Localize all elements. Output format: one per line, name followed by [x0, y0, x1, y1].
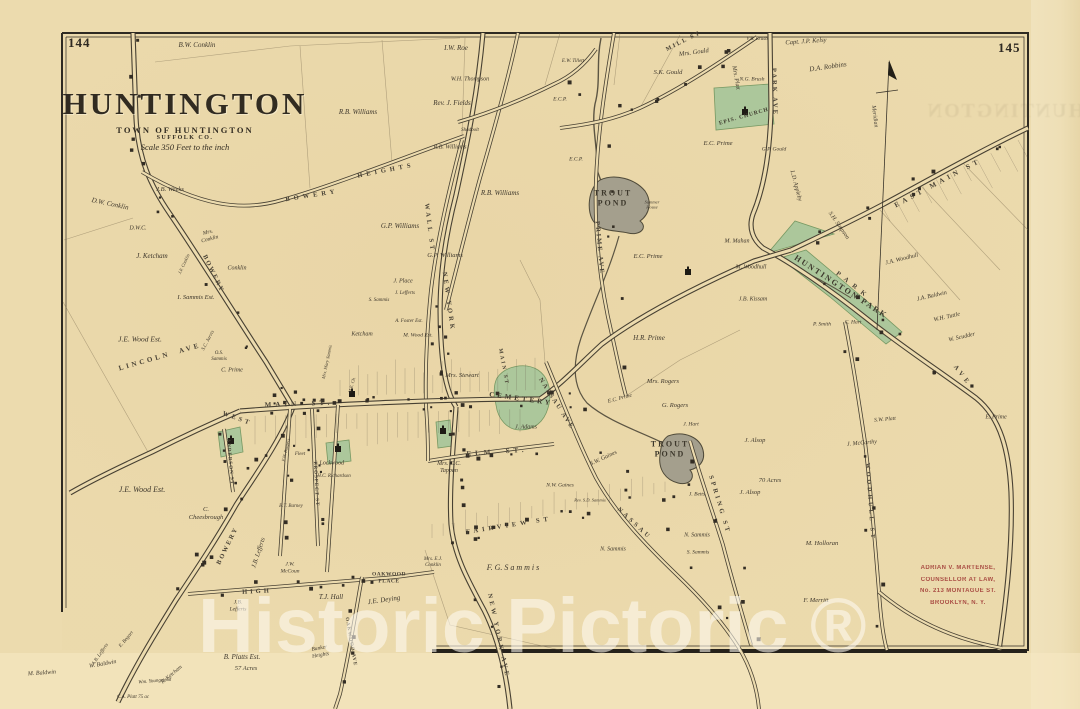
map-label: E.C.P.	[569, 157, 583, 164]
map-label: J. Adams	[515, 424, 537, 431]
map-label: H.R. Prime	[633, 334, 665, 342]
map-label: J. Lefferts	[395, 291, 415, 297]
map-label: J.E. Wood Est.	[118, 335, 162, 344]
map-label: M. Wood Est.	[403, 333, 432, 340]
map-label: S. Sammis	[369, 298, 390, 304]
map-label: R.B. Williams	[434, 144, 467, 151]
map-label: B.W. Conklin	[179, 41, 216, 49]
map-label: J. Betts	[689, 492, 705, 499]
map-label: B. Platts Est.	[224, 653, 261, 661]
map-label: J. Alsop	[745, 437, 766, 445]
stamp-line: COUNSELLOR AT LAW,	[893, 575, 1023, 587]
map-label: M. Mahan	[725, 238, 750, 245]
map-label: C. Prime	[221, 367, 243, 374]
map-label: C. Cheesbrough	[189, 506, 223, 522]
stamp-line: ADRIAN V. MARTENSE,	[893, 563, 1023, 575]
map-label: N.W. Gaines	[546, 483, 573, 490]
map-label: G.P. Gould	[762, 147, 787, 154]
map-label: J.B. Kissam	[739, 296, 768, 303]
map-label: Ketcham	[351, 331, 372, 338]
map-label: G.P. Williams	[381, 222, 419, 230]
map-label: TROUT POND	[594, 188, 632, 207]
stamp-line: No. 213 MONTAGUE ST.	[893, 586, 1023, 598]
compass-needle-icon	[888, 60, 897, 80]
map-label: M. Holloran	[806, 540, 839, 548]
map-label: C. Hart	[845, 320, 862, 327]
map-label: I. Sammis Est.	[177, 294, 214, 302]
page-number-left: 144	[68, 35, 91, 51]
ghost-title-bleedthrough: HUNTINGTON	[905, 100, 1080, 123]
map-label: C.A. Platt 75 ac	[117, 695, 149, 701]
map-label: Mrs. E.J. Conklin	[424, 557, 442, 569]
map-county: SUFFOLK CO.	[60, 135, 310, 141]
map-label: Shadbolt	[461, 128, 479, 134]
page-number-right: 145	[998, 40, 1021, 56]
map-label: E.C. Prime	[633, 253, 662, 261]
map-subtitle: TOWN OF HUNTINGTON	[60, 125, 310, 135]
map-label: E. Prime	[985, 414, 1006, 421]
map-label: Conklin	[228, 265, 247, 272]
map-label: I.W. Roe	[444, 44, 468, 52]
map-label: 57 Acres	[235, 665, 258, 673]
map-label: E.W. Tillett	[562, 59, 584, 65]
map-label: T.J. Hall	[319, 593, 343, 601]
map-label: Rev. J. Fields	[433, 99, 471, 107]
map-label: J. Hart	[683, 422, 699, 429]
map-label: D.W.C.	[129, 225, 146, 232]
map-title-block: HUNTINGTON TOWN OF HUNTINGTON SUFFOLK CO…	[60, 86, 310, 152]
map-label: Summer House	[645, 200, 660, 211]
map-label: 70 Acres	[759, 477, 782, 485]
atlas-sheet: MAIN ST.MAIN STEAST MAIN STELM ST.WALL S…	[0, 0, 1080, 709]
map-label: OAKWOOD PLACE	[372, 571, 406, 584]
stamp-line: BROOKLYN, N. Y.	[893, 598, 1023, 610]
map-label: J. Lockwood	[314, 460, 344, 467]
martense-stamp: ADRIAN V. MARTENSE,COUNSELLOR AT LAW,No.…	[893, 563, 1023, 610]
map-label: R.B. Williams	[481, 189, 519, 197]
map-label: W.H. Thompson	[451, 76, 489, 83]
church-building-icon	[440, 428, 446, 434]
map-label: S. Sammis	[687, 550, 710, 557]
map-label: E.C. Prime	[703, 140, 732, 148]
map-label: E.C.P.	[553, 97, 567, 104]
map-label: G. Rogers	[662, 402, 688, 410]
map-label: TROUT POND	[651, 439, 689, 458]
map-label: J. Place	[393, 278, 412, 285]
compass-meridian	[876, 60, 898, 330]
map-label: P. Smith	[813, 322, 831, 329]
map-label: N. Sammis	[600, 546, 626, 553]
map-label: O.S. Sammis	[211, 351, 227, 363]
map-label: S.K. Gould	[654, 69, 683, 77]
map-title: HUNTINGTON	[60, 86, 310, 122]
park-triangle	[768, 221, 834, 253]
map-label: J. Alsop	[740, 489, 761, 497]
map-label: A. Foster Est.	[395, 319, 423, 325]
map-label: F. G. S a m m i s	[487, 563, 540, 573]
map-label: J.W. McCoun	[281, 561, 300, 574]
map-label: J.B. Lefferts	[230, 599, 247, 612]
map-label: Mrs. Rogers	[647, 378, 679, 386]
map-label: H.C. Richardson	[317, 474, 351, 480]
map-label: F. Merritt	[803, 597, 828, 605]
map-scale-note: Scale 350 Feet to the inch	[60, 142, 310, 152]
map-label: G.P. Williams	[427, 252, 462, 260]
map-label: R.B. Williams	[339, 108, 377, 116]
map-label: N.G. Brush	[740, 77, 765, 84]
map-label: Fleet	[295, 452, 305, 458]
map-label: Rev. S.D. Sammis	[574, 497, 606, 502]
map-label: M. Woodhull	[736, 264, 767, 271]
map-label: Mrs. Stewart	[445, 372, 479, 380]
church-building-icon	[685, 269, 691, 275]
church-building-icon	[335, 446, 341, 452]
map-label: V.B. Brush	[746, 37, 767, 43]
map-label: Mrs. C.C. Tappan	[437, 461, 461, 475]
map-label: J. Ketcham	[136, 252, 168, 260]
map-label: B.T. Barney	[279, 504, 303, 510]
map-label: N. Sammis	[684, 532, 710, 539]
map-label: HIGH	[242, 587, 272, 596]
map-label: J.E. Wood Est.	[119, 485, 166, 495]
map-label: J.B. Weeks	[156, 186, 184, 194]
map-label: PARK AVE	[769, 68, 778, 116]
